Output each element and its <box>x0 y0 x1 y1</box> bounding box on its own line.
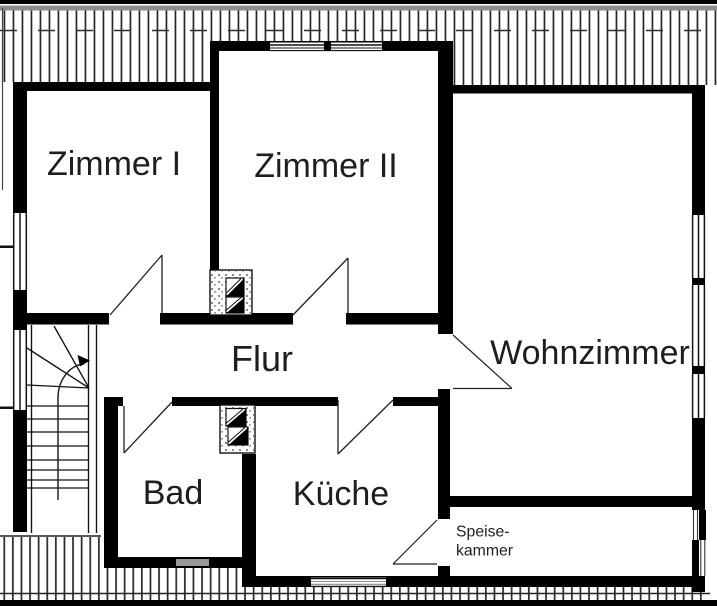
svg-text:Wohnzimmer: Wohnzimmer <box>490 334 690 372</box>
svg-text:Speise-: Speise- <box>456 524 510 541</box>
svg-text:Küche: Küche <box>293 475 389 513</box>
svg-text:Flur: Flur <box>231 338 293 379</box>
svg-text:kammer: kammer <box>456 543 513 560</box>
svg-text:Bad: Bad <box>143 474 204 512</box>
svg-text:Zimmer II: Zimmer II <box>254 147 398 185</box>
svg-text:Zimmer I: Zimmer I <box>47 145 181 183</box>
